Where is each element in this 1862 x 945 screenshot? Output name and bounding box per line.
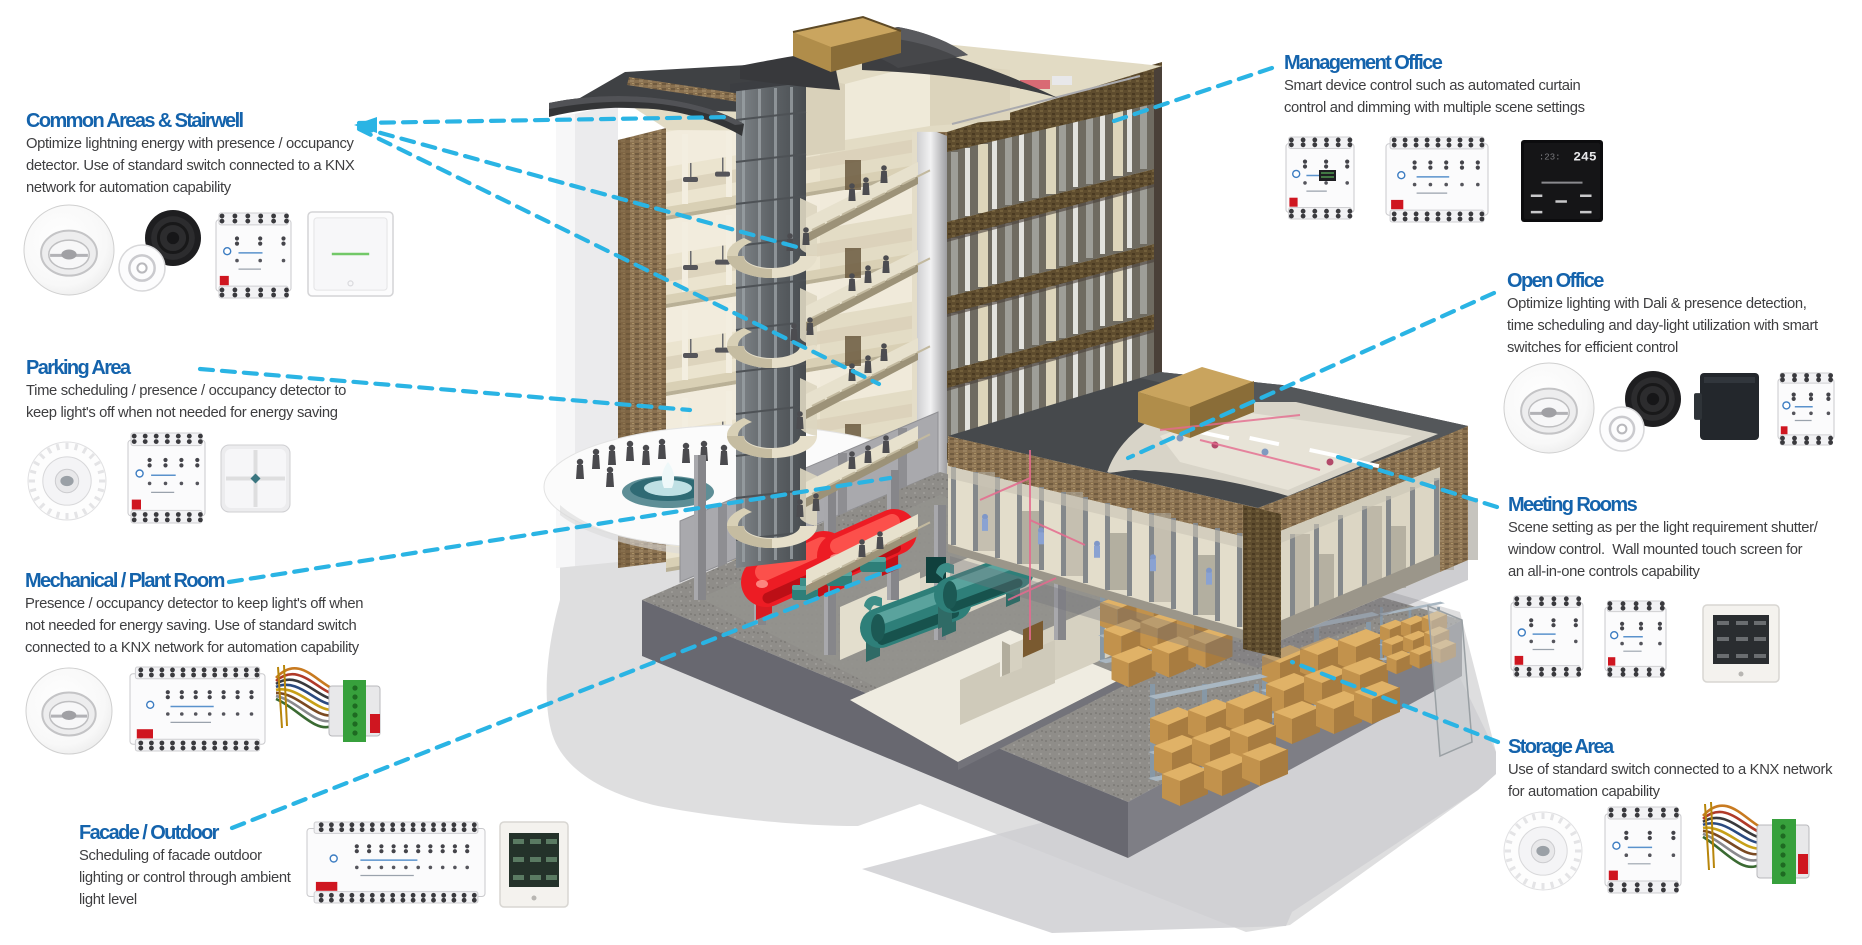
svg-text:245: 245 xyxy=(1573,150,1597,165)
svg-text::23:: :23: xyxy=(1539,153,1561,163)
